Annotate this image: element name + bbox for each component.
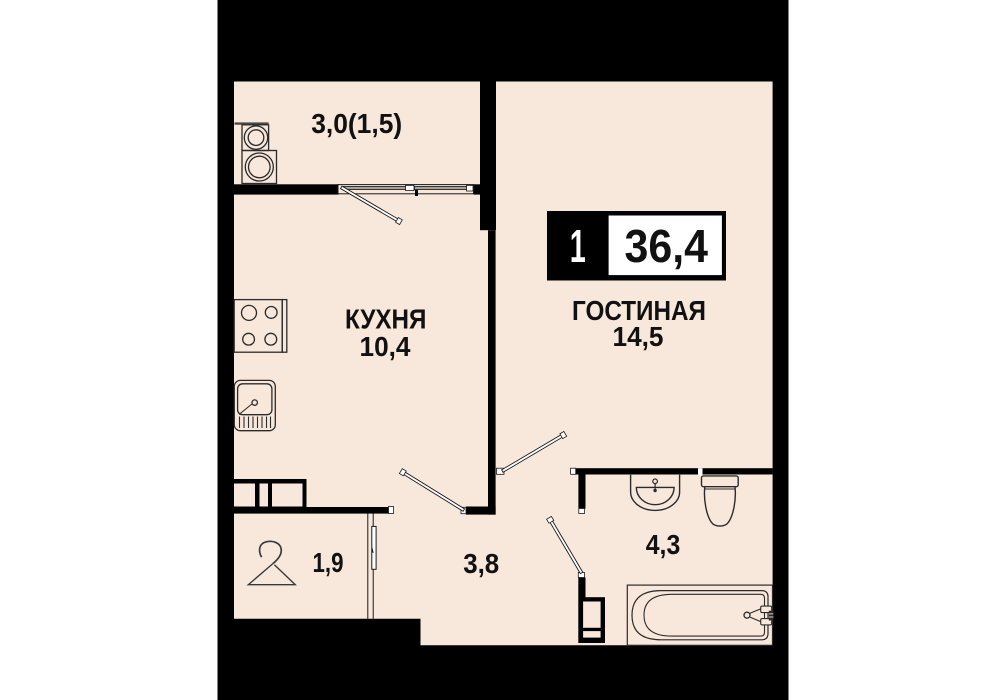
svg-text:10,4: 10,4 xyxy=(360,331,412,362)
svg-text:1: 1 xyxy=(570,220,586,272)
svg-text:3,0(1,5): 3,0(1,5) xyxy=(311,108,402,139)
svg-text:36,4: 36,4 xyxy=(625,220,709,272)
svg-text:КУХНЯ: КУХНЯ xyxy=(345,304,427,335)
svg-text:14,5: 14,5 xyxy=(613,321,664,352)
svg-text:1,9: 1,9 xyxy=(313,547,344,578)
svg-text:4,3: 4,3 xyxy=(646,529,681,560)
svg-text:3,8: 3,8 xyxy=(463,548,499,579)
